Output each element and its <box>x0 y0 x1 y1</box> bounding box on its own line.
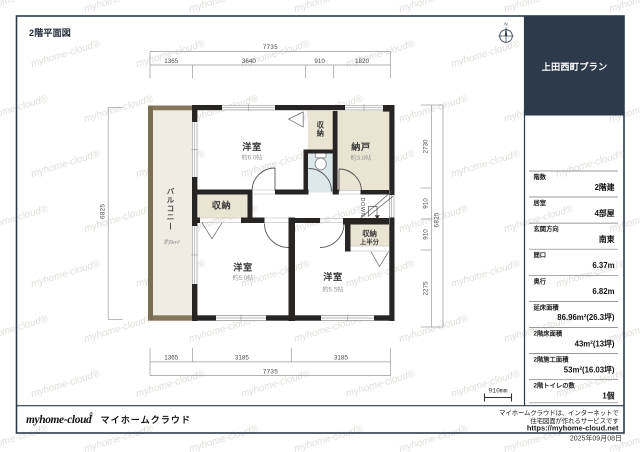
svg-text:約3.0帖: 約3.0帖 <box>351 154 372 162</box>
svg-text:約5.0帖: 約5.0帖 <box>233 274 254 282</box>
svg-text:マイホームクラウド: マイホームクラウド <box>101 415 192 425</box>
svg-text:納戸: 納戸 <box>351 141 371 152</box>
svg-text:上田西町プラン: 上田西町プラン <box>542 61 608 72</box>
svg-text:洋室: 洋室 <box>233 262 253 273</box>
svg-text:2025年09月08日: 2025年09月08日 <box>570 433 622 442</box>
svg-text:約6.0帖: 約6.0帖 <box>242 154 263 162</box>
svg-text:2階施工面積: 2階施工面積 <box>534 355 570 364</box>
svg-text:2階トイレの数: 2階トイレの数 <box>534 381 576 390</box>
svg-text:上半分: 上半分 <box>360 237 380 246</box>
svg-text:収納: 収納 <box>362 229 377 238</box>
svg-text:1365: 1365 <box>164 355 179 362</box>
svg-text:南東: 南東 <box>599 234 615 244</box>
svg-text:https://myhome-cloud.net: https://myhome-cloud.net <box>527 424 619 433</box>
svg-text:53m²(16.03坪): 53m²(16.03坪) <box>564 364 615 374</box>
svg-text:910: 910 <box>314 58 325 65</box>
svg-text:2275: 2275 <box>422 281 429 296</box>
svg-text:7735: 7735 <box>263 369 278 376</box>
svg-text:約9m²: 約9m² <box>164 238 180 246</box>
svg-text:洋室: 洋室 <box>242 141 262 152</box>
svg-text:2730: 2730 <box>422 139 429 154</box>
svg-text:1365: 1365 <box>164 58 179 65</box>
svg-text:3185: 3185 <box>334 355 349 362</box>
svg-text:階数: 階数 <box>534 172 547 181</box>
svg-text:ニ: ニ <box>167 213 174 222</box>
svg-text:2階床面積: 2階床面積 <box>534 329 563 338</box>
svg-text:6825: 6825 <box>434 212 441 227</box>
svg-text:DOWN: DOWN <box>359 198 365 218</box>
svg-text:約5.5帖: 約5.5帖 <box>323 286 344 294</box>
svg-text:収納: 収納 <box>212 200 232 211</box>
svg-text:玄関方向: 玄関方向 <box>534 224 559 233</box>
svg-text:myhome-cloud: myhome-cloud <box>26 414 92 426</box>
svg-text:®: ® <box>90 411 94 418</box>
svg-text:納: 納 <box>317 129 324 138</box>
svg-text:2階平面図: 2階平面図 <box>29 27 71 38</box>
svg-text:間口: 間口 <box>534 250 547 259</box>
svg-text:6825: 6825 <box>99 204 106 219</box>
svg-text:3640: 3640 <box>242 58 257 65</box>
svg-text:6.82m: 6.82m <box>592 287 614 296</box>
svg-text:1820: 1820 <box>355 58 370 65</box>
svg-text:3185: 3185 <box>235 355 250 362</box>
svg-text:910mm: 910mm <box>488 388 507 395</box>
svg-text:N: N <box>504 22 507 27</box>
svg-text:4部屋: 4部屋 <box>595 208 615 218</box>
svg-text:延床面積: 延床面積 <box>533 302 560 311</box>
svg-text:910: 910 <box>422 229 429 240</box>
svg-text:マイホームクラウドは、インターネットで: マイホームクラウドは、インターネットで <box>499 408 619 417</box>
svg-text:1個: 1個 <box>602 391 614 401</box>
svg-text:43m²(13坪): 43m²(13坪) <box>575 338 615 348</box>
svg-text:居室: 居室 <box>534 198 547 207</box>
svg-text:奥行: 奥行 <box>534 276 547 285</box>
svg-text:7735: 7735 <box>263 44 278 51</box>
svg-text:洋室: 洋室 <box>323 271 343 282</box>
svg-text:6.37m: 6.37m <box>592 261 614 270</box>
svg-text:86.96m²(26.3坪): 86.96m²(26.3坪) <box>557 312 615 322</box>
svg-text:910: 910 <box>422 198 429 209</box>
svg-text:2階建: 2階建 <box>595 182 615 192</box>
